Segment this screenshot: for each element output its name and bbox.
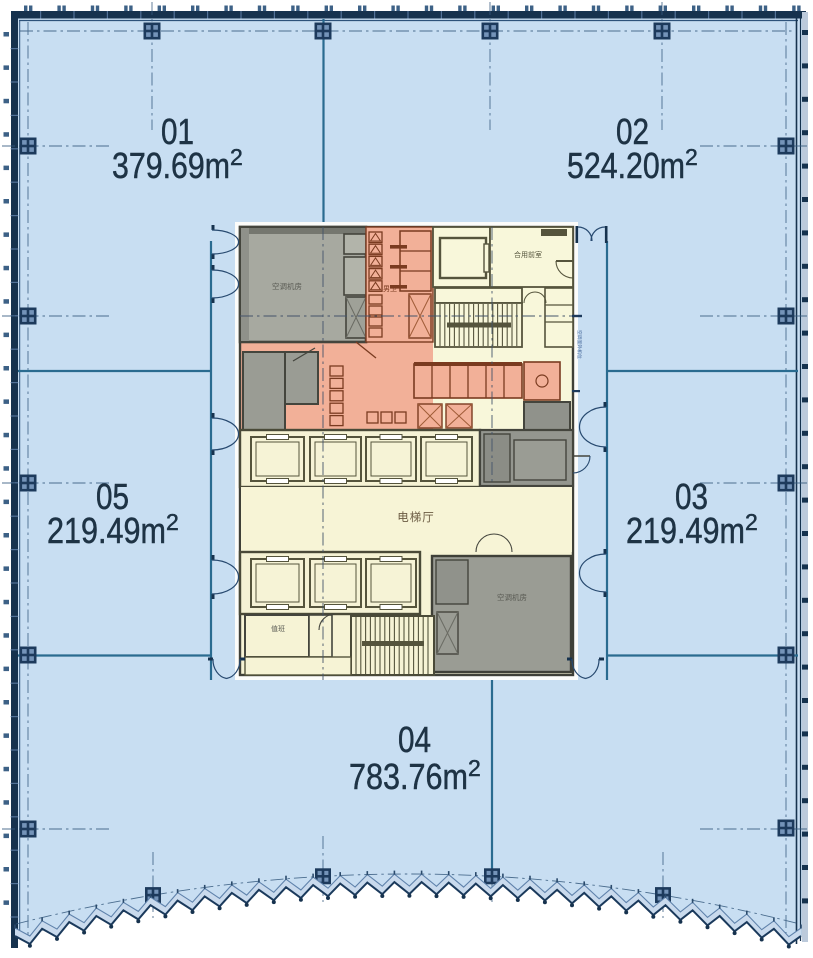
svg-text:783.76m2: 783.76m2 (349, 755, 481, 797)
svg-text:空调机房: 空调机房 (497, 592, 527, 602)
svg-text:219.49m2: 219.49m2 (626, 509, 758, 551)
svg-text:219.49m2: 219.49m2 (47, 509, 179, 551)
svg-text:空调机房: 空调机房 (272, 281, 302, 291)
svg-text:379.69m2: 379.69m2 (112, 144, 243, 186)
svg-text:电梯厅: 电梯厅 (397, 511, 435, 524)
svg-text:值班: 值班 (271, 624, 285, 633)
svg-text:524.20m2: 524.20m2 (567, 144, 698, 186)
svg-text:合用前室: 合用前室 (514, 250, 542, 259)
svg-text:04: 04 (398, 719, 431, 760)
svg-text:空调室外机位: 空调室外机位 (576, 330, 583, 359)
